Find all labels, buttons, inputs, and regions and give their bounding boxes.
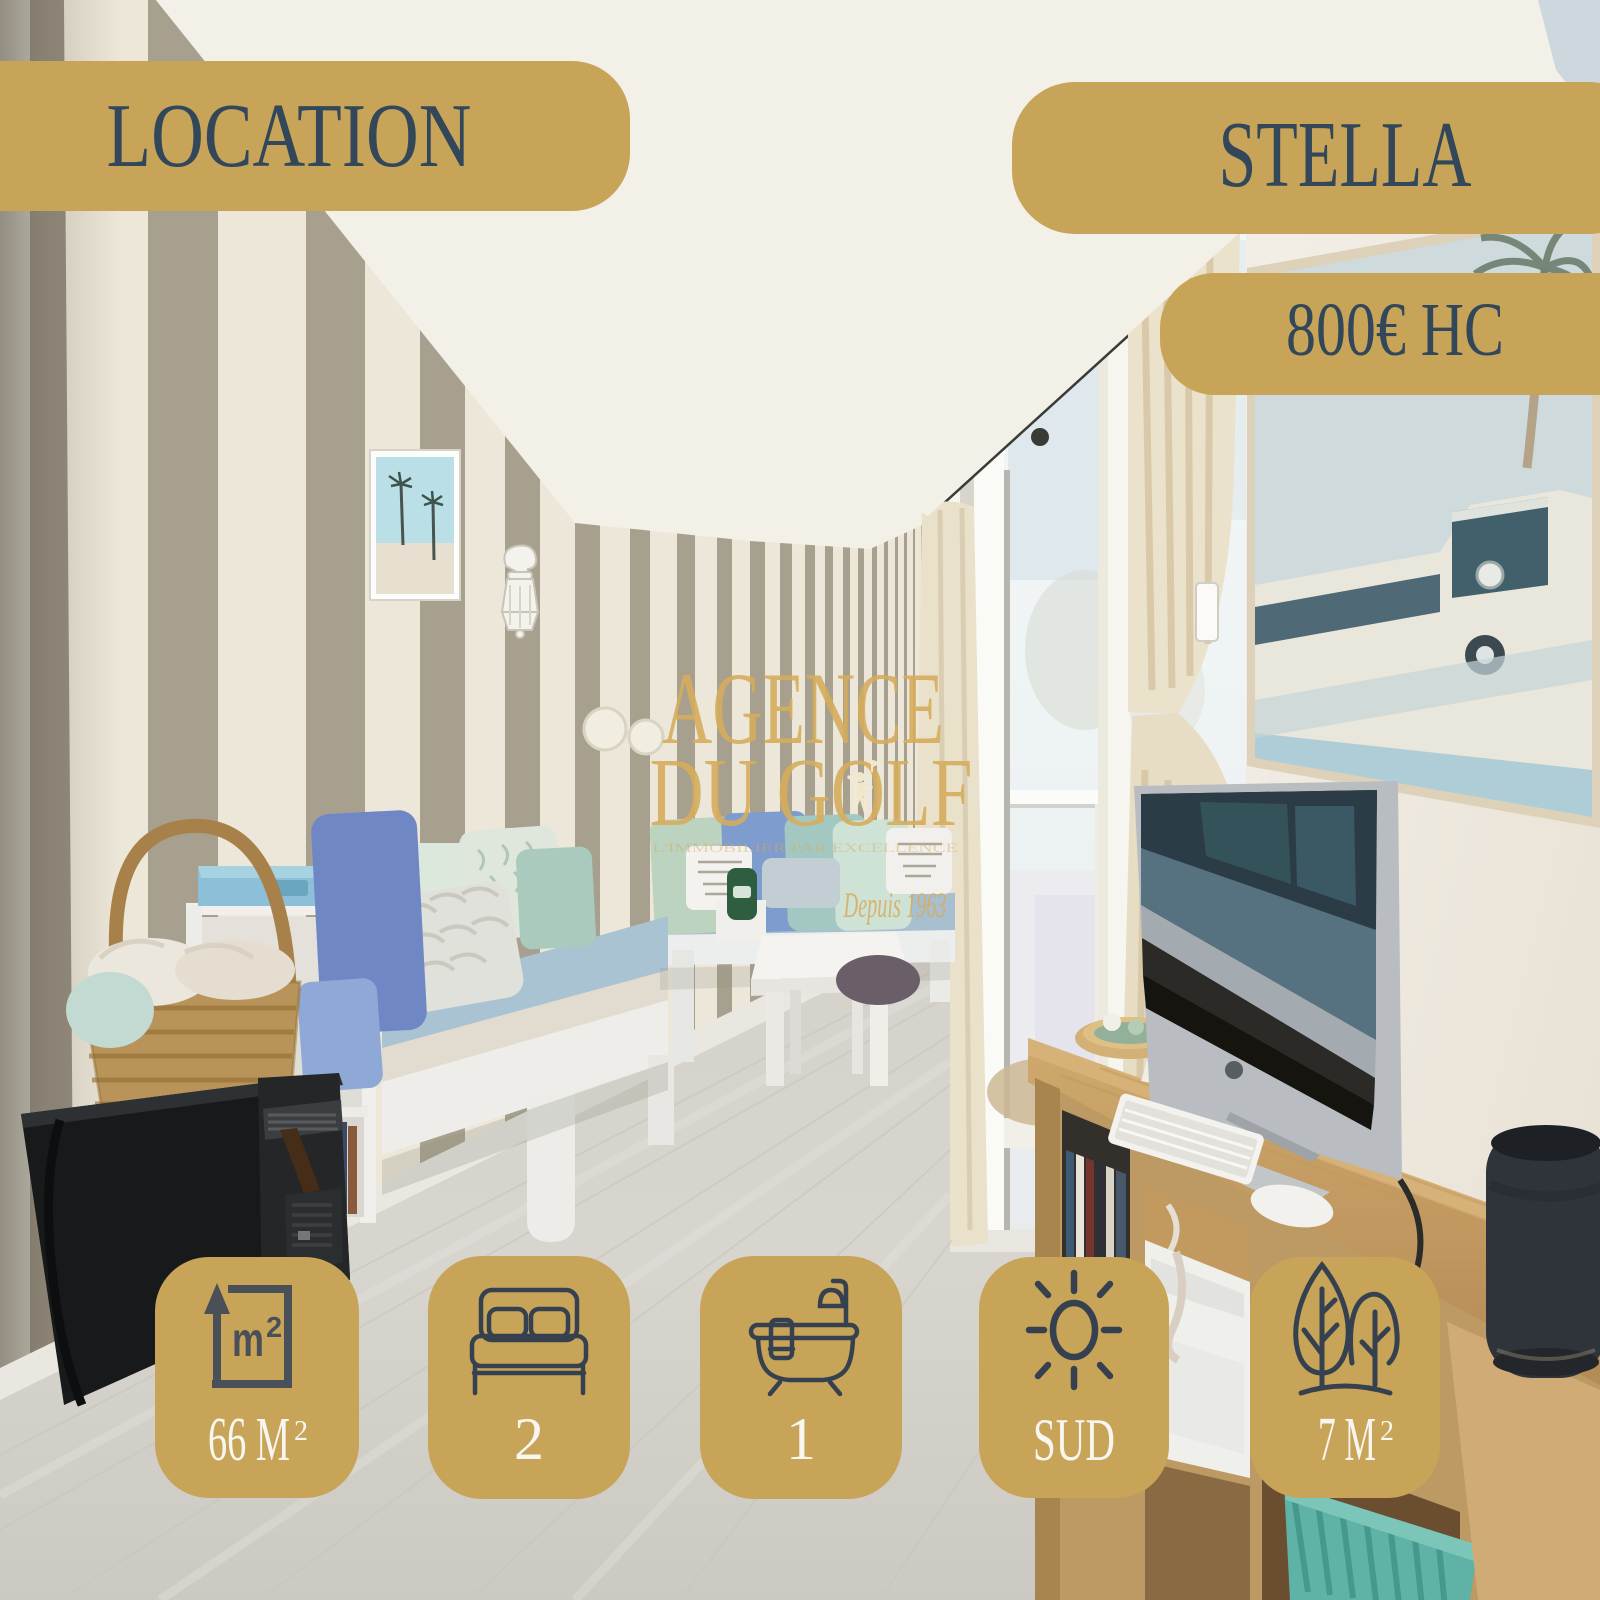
svg-text:STELLA: STELLA bbox=[1219, 103, 1472, 207]
svg-text:2: 2 bbox=[1380, 1416, 1394, 1447]
svg-text:7 M: 7 M bbox=[1318, 1406, 1376, 1474]
svg-text:2: 2 bbox=[514, 1406, 544, 1472]
svg-text:LOCATION: LOCATION bbox=[107, 85, 472, 186]
svg-text:m: m bbox=[232, 1314, 264, 1367]
svg-text:DU GOLF: DU GOLF bbox=[650, 739, 973, 847]
svg-text:2: 2 bbox=[266, 1312, 282, 1344]
svg-text:2: 2 bbox=[294, 1416, 308, 1447]
svg-text:Depuis 1963: Depuis 1963 bbox=[843, 885, 947, 925]
svg-text:66 M: 66 M bbox=[208, 1406, 290, 1474]
svg-text:SUD: SUD bbox=[1033, 1407, 1115, 1473]
svg-text:1: 1 bbox=[786, 1406, 816, 1472]
svg-text:800€ HC: 800€ HC bbox=[1286, 288, 1504, 372]
svg-text:L'IMMOBILIER PAR EXCELLENCE: L'IMMOBILIER PAR EXCELLENCE bbox=[653, 840, 958, 855]
